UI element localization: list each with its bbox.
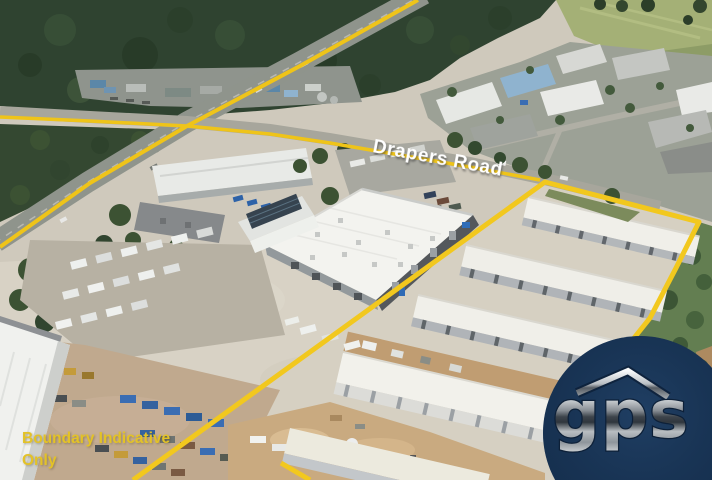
aerial-photo-svg: Drapers Road Boundary Indicative Only gp… — [0, 0, 712, 480]
logo-text: gps — [553, 376, 690, 453]
disclaimer-line-2: Only — [22, 452, 57, 469]
aerial-photo: Drapers Road Boundary Indicative Only gp… — [0, 0, 712, 480]
disclaimer-line-1: Boundary Indicative — [22, 430, 171, 447]
